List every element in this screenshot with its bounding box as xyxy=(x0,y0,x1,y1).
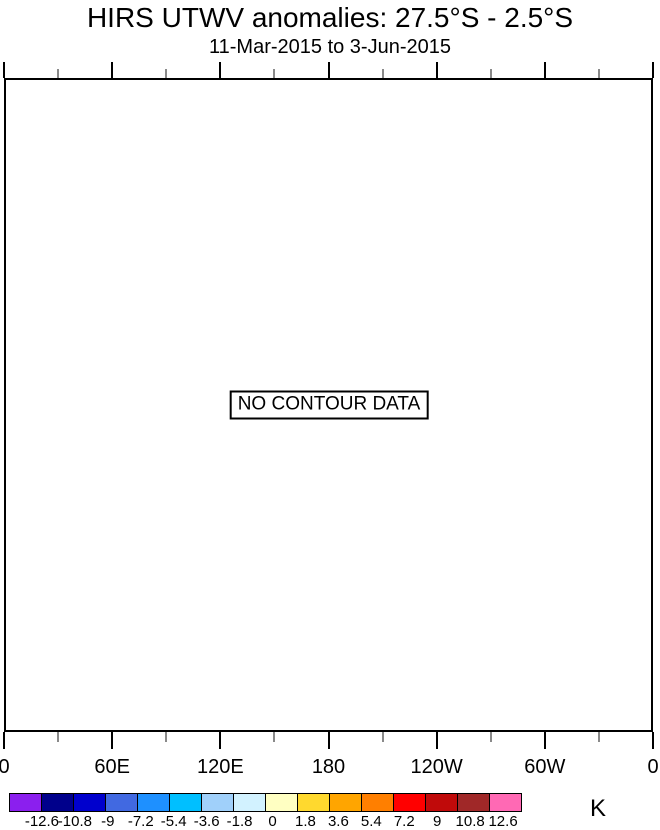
colorbar-cell xyxy=(297,793,330,812)
x-major-tick xyxy=(3,732,5,749)
colorbar-cell xyxy=(425,793,458,812)
colorbar-boundary-label: 9 xyxy=(433,813,441,830)
colorbar-boundary-label: -9 xyxy=(101,813,114,830)
colorbar-boundary-label: 7.2 xyxy=(394,813,415,830)
x-major-tick xyxy=(328,62,330,78)
x-tick-label: 0 xyxy=(0,756,10,779)
x-major-tick xyxy=(436,732,438,749)
x-minor-tick xyxy=(382,732,384,742)
colorbar-cell xyxy=(9,793,42,812)
colorbar-boundary-label: 0 xyxy=(268,813,276,830)
x-major-tick xyxy=(544,62,546,78)
x-tick-label: 60E xyxy=(94,756,130,779)
colorbar-cell xyxy=(361,793,394,812)
colorbar-boundary-label: -1.8 xyxy=(227,813,253,830)
colorbar-boundary-label: -3.6 xyxy=(194,813,220,830)
colorbar-cell xyxy=(329,793,362,812)
colorbar-cell xyxy=(233,793,266,812)
x-minor-tick xyxy=(382,69,384,78)
x-major-tick xyxy=(111,732,113,749)
colorbar-cell xyxy=(201,793,234,812)
colorbar-boundary-label: 1.8 xyxy=(295,813,316,830)
x-tick-label: 0 xyxy=(647,756,658,779)
colorbar-cell xyxy=(457,793,490,812)
x-major-tick xyxy=(3,62,5,78)
colorbar-boundary-label: 10.8 xyxy=(456,813,485,830)
colorbar-boundary-label: -10.8 xyxy=(58,813,92,830)
x-major-tick xyxy=(219,62,221,78)
x-major-tick xyxy=(652,732,654,749)
colorbar-cell xyxy=(41,793,74,812)
x-minor-tick xyxy=(598,69,600,78)
colorbar-boundary-label: -7.2 xyxy=(128,813,154,830)
colorbar-cell xyxy=(265,793,298,812)
x-tick-label: 180 xyxy=(312,756,345,779)
x-major-tick xyxy=(544,732,546,749)
x-major-tick xyxy=(328,732,330,749)
colorbar-cell xyxy=(105,793,138,812)
x-minor-tick xyxy=(598,732,600,742)
colorbar-unit-label: K xyxy=(590,795,606,823)
x-minor-tick xyxy=(490,69,492,78)
x-major-tick xyxy=(652,62,654,78)
colorbar-labels: -12.6-10.8-9-7.2-5.4-3.6-1.801.83.65.47.… xyxy=(9,813,536,830)
x-minor-tick xyxy=(273,69,275,78)
x-major-tick xyxy=(436,62,438,78)
colorbar-boundary-label: -12.6 xyxy=(25,813,59,830)
colorbar-cell xyxy=(393,793,426,812)
x-major-tick xyxy=(219,732,221,749)
x-minor-tick xyxy=(273,732,275,742)
colorbar-cell xyxy=(73,793,106,812)
colorbar-cell xyxy=(169,793,202,812)
x-minor-tick xyxy=(165,69,167,78)
x-minor-tick xyxy=(57,732,59,742)
x-major-tick xyxy=(111,62,113,78)
x-tick-label: 60W xyxy=(524,756,565,779)
x-tick-label: 120W xyxy=(411,756,463,779)
colorbar-boundary-label: 12.6 xyxy=(488,813,517,830)
x-minor-tick xyxy=(57,69,59,78)
colorbar xyxy=(9,793,522,812)
x-axis-labels: 060E120E180120W60W0 xyxy=(4,756,653,780)
colorbar-cell xyxy=(137,793,170,812)
chart-subtitle: 11-Mar-2015 to 3-Jun-2015 xyxy=(0,36,660,58)
x-tick-label: 120E xyxy=(197,756,244,779)
colorbar-cell xyxy=(489,793,522,812)
colorbar-boundary-label: 3.6 xyxy=(328,813,349,830)
x-minor-tick xyxy=(165,732,167,742)
colorbar-boundary-label: -5.4 xyxy=(161,813,187,830)
no-contour-data-box: NO CONTOUR DATA xyxy=(230,391,429,420)
colorbar-boundary-label: 5.4 xyxy=(361,813,382,830)
plot-canvas: HIRS UTWV anomalies: 27.5°S - 2.5°S 11-M… xyxy=(0,0,660,830)
chart-title: HIRS UTWV anomalies: 27.5°S - 2.5°S xyxy=(0,2,660,34)
x-minor-tick xyxy=(490,732,492,742)
